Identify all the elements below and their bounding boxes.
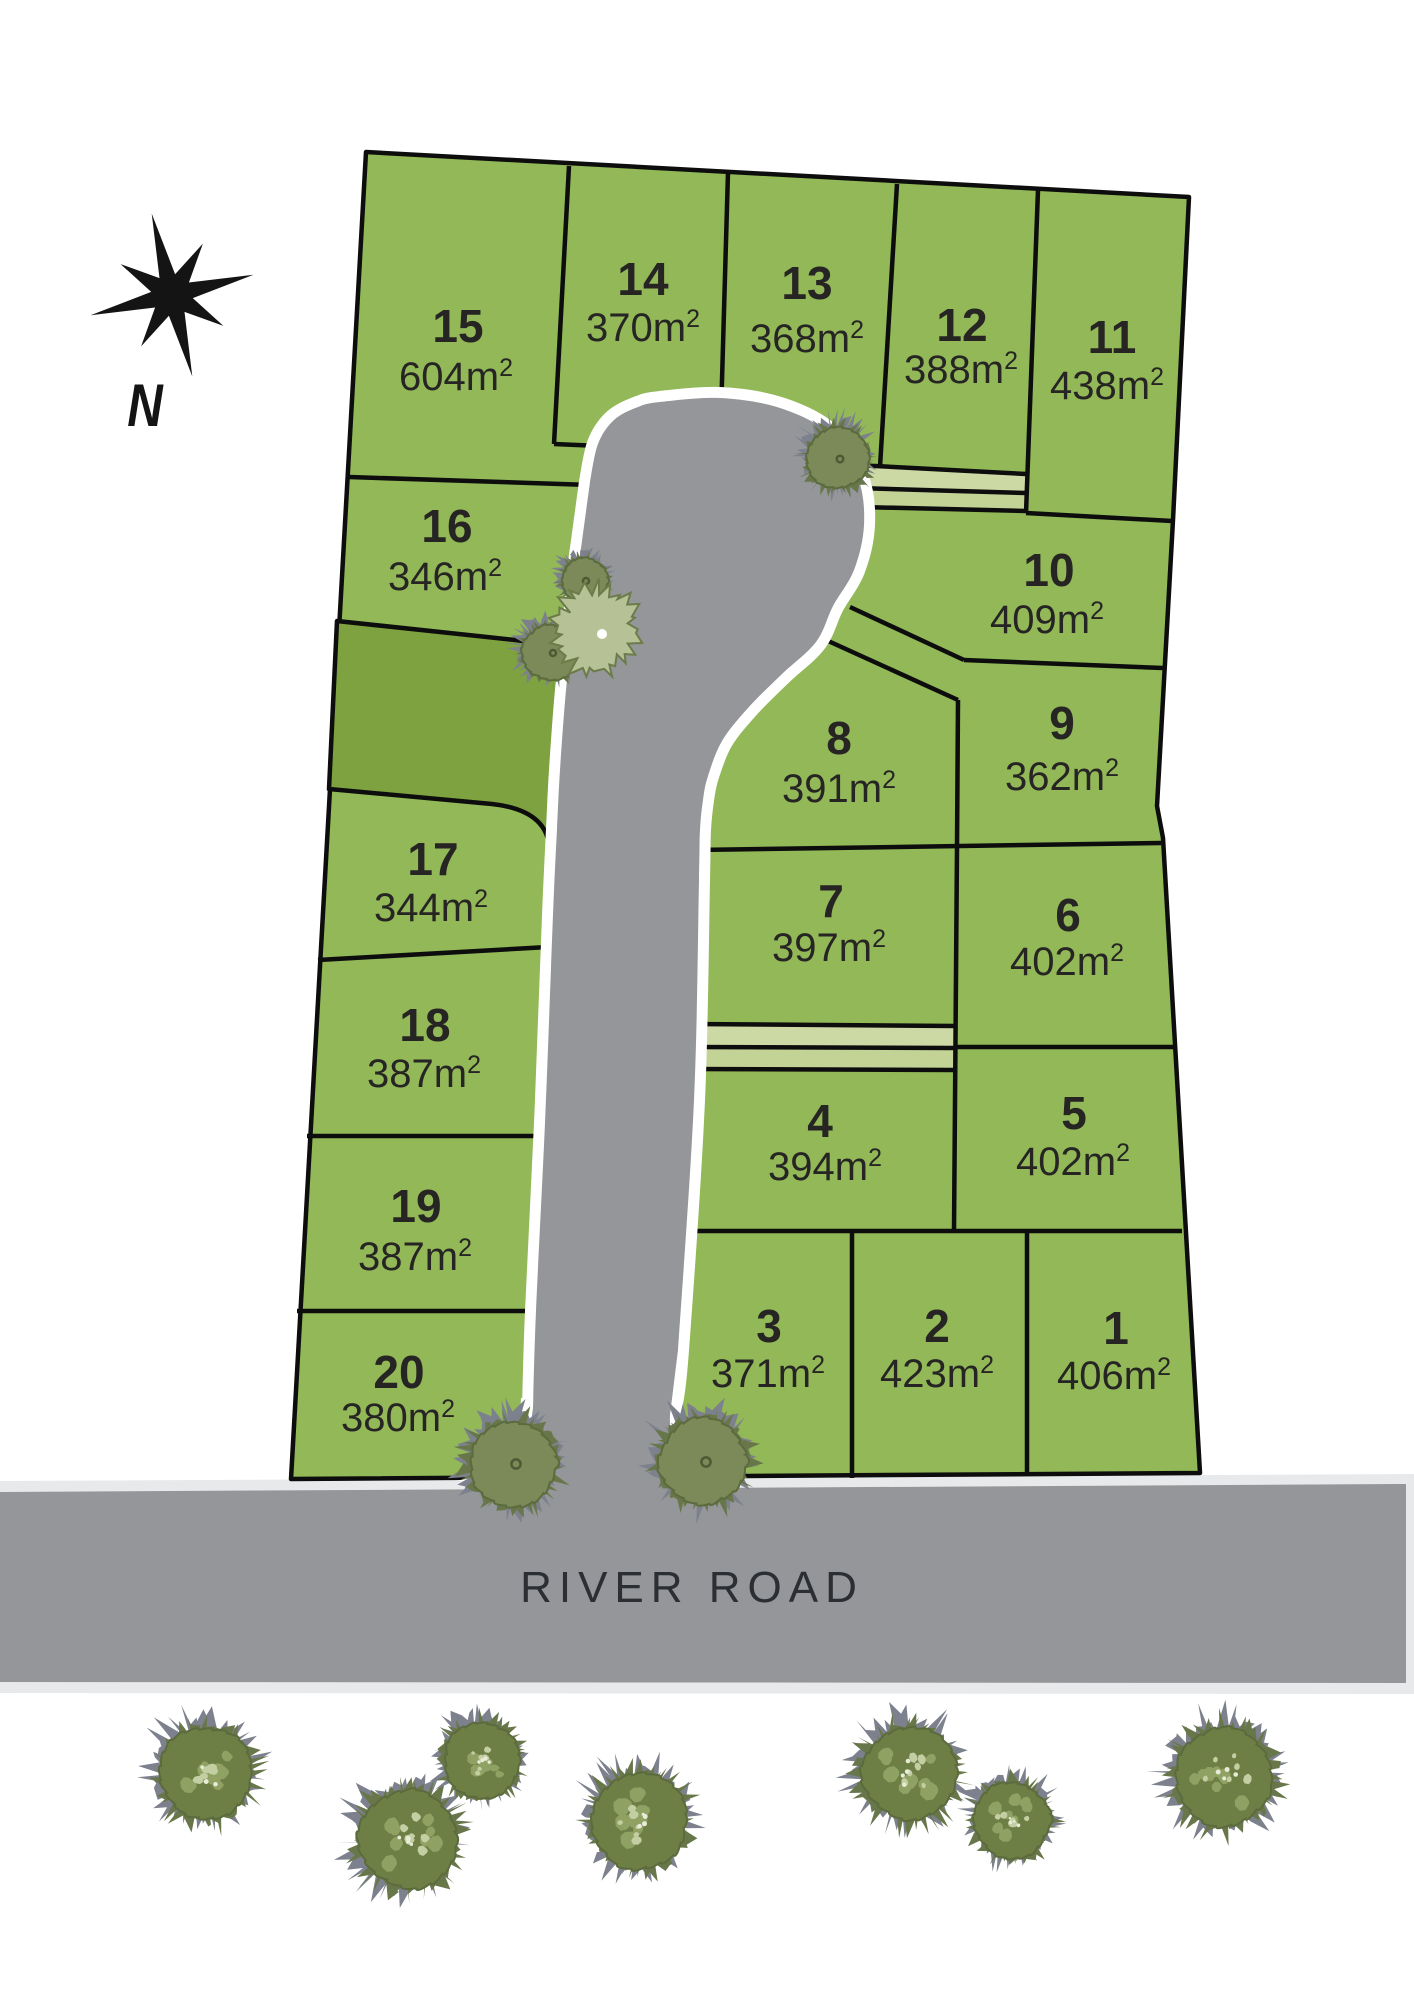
svg-text:2: 2	[924, 1300, 950, 1352]
svg-text:8: 8	[826, 712, 852, 764]
svg-text:6: 6	[1055, 889, 1081, 941]
svg-text:402m2: 402m2	[1010, 939, 1124, 984]
svg-text:438m2: 438m2	[1050, 363, 1164, 408]
svg-text:17: 17	[407, 833, 458, 885]
svg-text:370m2: 370m2	[586, 305, 700, 350]
svg-text:604m2: 604m2	[399, 354, 513, 399]
svg-text:10: 10	[1023, 544, 1074, 596]
svg-text:387m2: 387m2	[367, 1051, 481, 1096]
svg-text:387m2: 387m2	[358, 1234, 472, 1279]
svg-text:391m2: 391m2	[782, 766, 896, 811]
svg-text:380m2: 380m2	[341, 1395, 455, 1440]
svg-text:5: 5	[1061, 1087, 1087, 1139]
svg-text:12: 12	[936, 299, 987, 351]
svg-text:371m2: 371m2	[711, 1351, 825, 1396]
svg-text:423m2: 423m2	[880, 1351, 994, 1396]
svg-text:362m2: 362m2	[1005, 754, 1119, 799]
svg-text:388m2: 388m2	[904, 347, 1018, 392]
svg-text:N: N	[127, 371, 164, 439]
svg-text:20: 20	[373, 1346, 424, 1398]
svg-text:RIVER ROAD: RIVER ROAD	[520, 1563, 864, 1612]
svg-text:16: 16	[421, 500, 472, 552]
svg-text:14: 14	[617, 253, 669, 305]
svg-text:397m2: 397m2	[772, 925, 886, 970]
svg-text:344m2: 344m2	[374, 885, 488, 930]
svg-text:368m2: 368m2	[750, 316, 864, 361]
svg-text:11: 11	[1088, 311, 1137, 363]
svg-text:13: 13	[781, 257, 832, 309]
svg-text:7: 7	[818, 875, 844, 927]
svg-text:19: 19	[390, 1180, 441, 1232]
svg-text:4: 4	[807, 1095, 833, 1147]
svg-text:409m2: 409m2	[990, 597, 1104, 642]
svg-text:15: 15	[432, 300, 483, 352]
svg-text:1: 1	[1103, 1302, 1129, 1354]
svg-text:18: 18	[399, 999, 450, 1051]
svg-text:394m2: 394m2	[768, 1144, 882, 1189]
svg-text:9: 9	[1049, 697, 1075, 749]
svg-text:3: 3	[756, 1300, 782, 1352]
svg-text:402m2: 402m2	[1016, 1139, 1130, 1184]
svg-text:406m2: 406m2	[1057, 1353, 1171, 1398]
svg-text:346m2: 346m2	[388, 554, 502, 599]
